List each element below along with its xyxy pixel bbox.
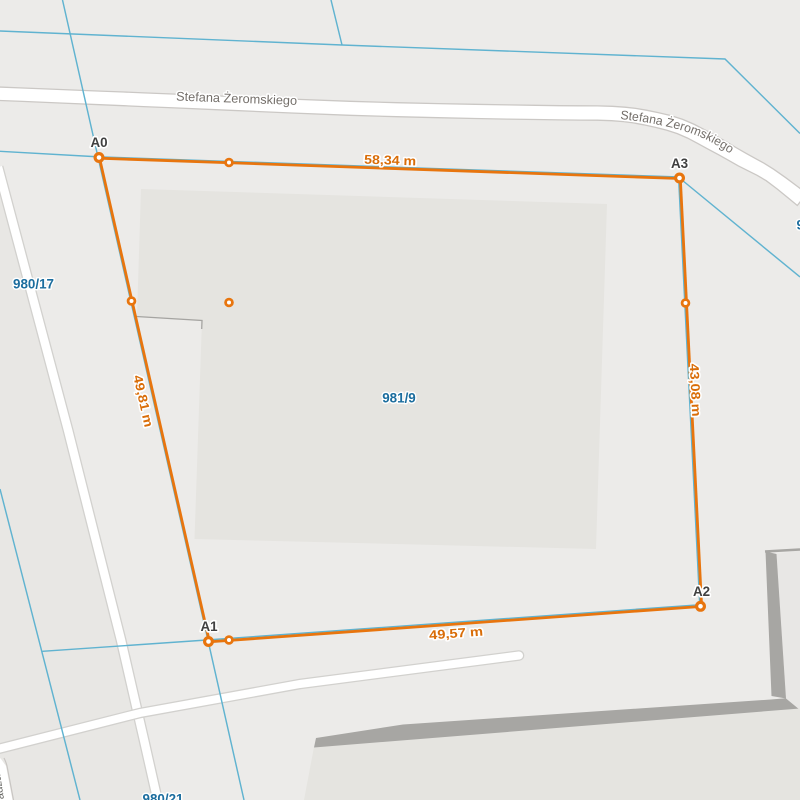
svg-text:58,34 m: 58,34 m [364,152,416,169]
svg-text:A0: A0 [90,135,107,150]
svg-text:980/21: 980/21 [143,792,185,800]
svg-text:A3: A3 [671,156,688,171]
svg-text:43,08 m: 43,08 m [687,363,705,417]
svg-text:A1: A1 [200,619,218,634]
svg-text:980/17: 980/17 [13,277,54,292]
svg-text:980: 980 [797,218,800,233]
svg-text:981/9: 981/9 [382,391,416,406]
svg-text:A2: A2 [693,584,710,599]
